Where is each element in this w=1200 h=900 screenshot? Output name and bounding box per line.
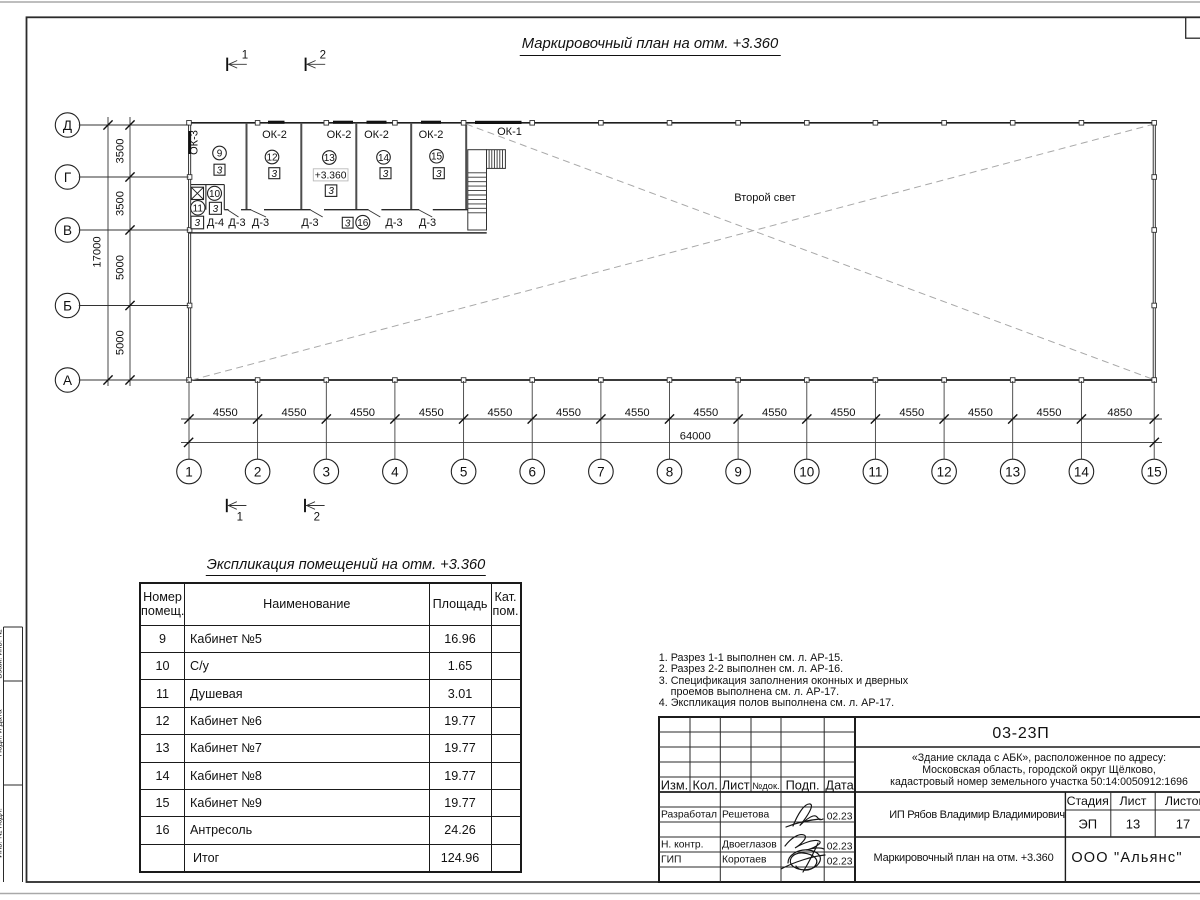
svg-text:5: 5 bbox=[460, 464, 468, 479]
svg-text:5000: 5000 bbox=[115, 255, 127, 280]
svg-text:4550: 4550 bbox=[350, 407, 375, 419]
svg-text:3: 3 bbox=[213, 204, 219, 215]
svg-text:12: 12 bbox=[266, 153, 278, 164]
svg-text:ОК-3: ОК-3 bbox=[189, 130, 201, 155]
svg-text:Д-3: Д-3 bbox=[385, 217, 402, 229]
svg-text:4550: 4550 bbox=[282, 407, 307, 419]
svg-text:ОК-2: ОК-2 bbox=[419, 129, 444, 141]
svg-text:11: 11 bbox=[868, 464, 882, 479]
svg-text:4550: 4550 bbox=[693, 407, 718, 419]
svg-text:15: 15 bbox=[431, 152, 443, 163]
svg-text:2: 2 bbox=[320, 49, 326, 61]
svg-text:ОК-1: ОК-1 bbox=[497, 126, 522, 138]
svg-text:Б: Б bbox=[63, 298, 72, 313]
svg-text:Д-3: Д-3 bbox=[252, 217, 269, 229]
svg-text:4550: 4550 bbox=[762, 407, 787, 419]
svg-text:14: 14 bbox=[1074, 464, 1090, 479]
svg-text:3500: 3500 bbox=[115, 139, 127, 164]
svg-text:Инв. № подл.: Инв. № подл. bbox=[0, 808, 4, 858]
svg-text:4850: 4850 bbox=[1107, 407, 1132, 419]
svg-text:А: А bbox=[63, 373, 72, 388]
svg-text:7: 7 bbox=[597, 464, 605, 479]
svg-text:8: 8 bbox=[666, 464, 674, 479]
svg-text:64000: 64000 bbox=[680, 430, 711, 442]
svg-text:Второй свет: Второй свет bbox=[734, 192, 795, 204]
svg-text:3: 3 bbox=[195, 218, 201, 229]
svg-text:4550: 4550 bbox=[556, 407, 581, 419]
svg-text:3: 3 bbox=[272, 169, 278, 180]
svg-text:3500: 3500 bbox=[115, 191, 127, 216]
svg-text:3: 3 bbox=[436, 169, 442, 180]
svg-text:4550: 4550 bbox=[419, 407, 444, 419]
svg-text:4550: 4550 bbox=[625, 407, 650, 419]
svg-text:4550: 4550 bbox=[487, 407, 512, 419]
svg-text:Г: Г bbox=[64, 170, 72, 185]
svg-text:Д-3: Д-3 bbox=[419, 217, 436, 229]
svg-text:4550: 4550 bbox=[899, 407, 924, 419]
svg-text:Д-4: Д-4 bbox=[207, 217, 224, 229]
svg-text:16: 16 bbox=[357, 218, 369, 229]
svg-text:15: 15 bbox=[1147, 464, 1162, 479]
svg-text:ОК-2: ОК-2 bbox=[364, 129, 389, 141]
svg-text:3: 3 bbox=[217, 165, 223, 176]
svg-text:ОК-2: ОК-2 bbox=[327, 129, 352, 141]
svg-text:13: 13 bbox=[1005, 464, 1020, 479]
svg-text:9: 9 bbox=[734, 464, 742, 479]
svg-text:Д: Д bbox=[63, 118, 72, 133]
svg-text:2: 2 bbox=[254, 464, 262, 479]
svg-text:9: 9 bbox=[217, 149, 223, 160]
svg-text:Взам. инв. №: Взам. инв. № bbox=[0, 629, 4, 679]
svg-text:10: 10 bbox=[209, 189, 221, 200]
svg-text:4550: 4550 bbox=[1037, 407, 1062, 419]
svg-text:2: 2 bbox=[314, 511, 320, 523]
svg-text:4550: 4550 bbox=[831, 407, 856, 419]
svg-text:4550: 4550 bbox=[968, 407, 993, 419]
svg-text:+3.360: +3.360 bbox=[315, 170, 347, 181]
svg-text:10: 10 bbox=[799, 464, 814, 479]
svg-text:4550: 4550 bbox=[213, 407, 238, 419]
svg-text:14: 14 bbox=[378, 153, 390, 164]
svg-text:11: 11 bbox=[193, 203, 204, 214]
svg-text:ОК-2: ОК-2 bbox=[262, 129, 287, 141]
svg-text:1: 1 bbox=[185, 464, 193, 479]
svg-text:1: 1 bbox=[237, 511, 243, 523]
svg-text:3: 3 bbox=[323, 464, 331, 479]
svg-text:4: 4 bbox=[391, 464, 399, 479]
svg-text:Д-3: Д-3 bbox=[228, 217, 245, 229]
svg-text:17000: 17000 bbox=[92, 236, 104, 267]
svg-text:6: 6 bbox=[528, 464, 536, 479]
svg-text:3: 3 bbox=[328, 186, 334, 197]
svg-text:3: 3 bbox=[383, 169, 389, 180]
svg-text:Д-3: Д-3 bbox=[301, 217, 318, 229]
svg-text:Подп. и дата: Подп. и дата bbox=[0, 709, 4, 757]
svg-text:3: 3 bbox=[345, 218, 351, 229]
svg-text:13: 13 bbox=[324, 153, 336, 164]
svg-text:1: 1 bbox=[242, 49, 248, 61]
svg-text:5000: 5000 bbox=[115, 330, 127, 355]
svg-text:12: 12 bbox=[937, 464, 952, 479]
svg-text:В: В bbox=[63, 223, 72, 238]
